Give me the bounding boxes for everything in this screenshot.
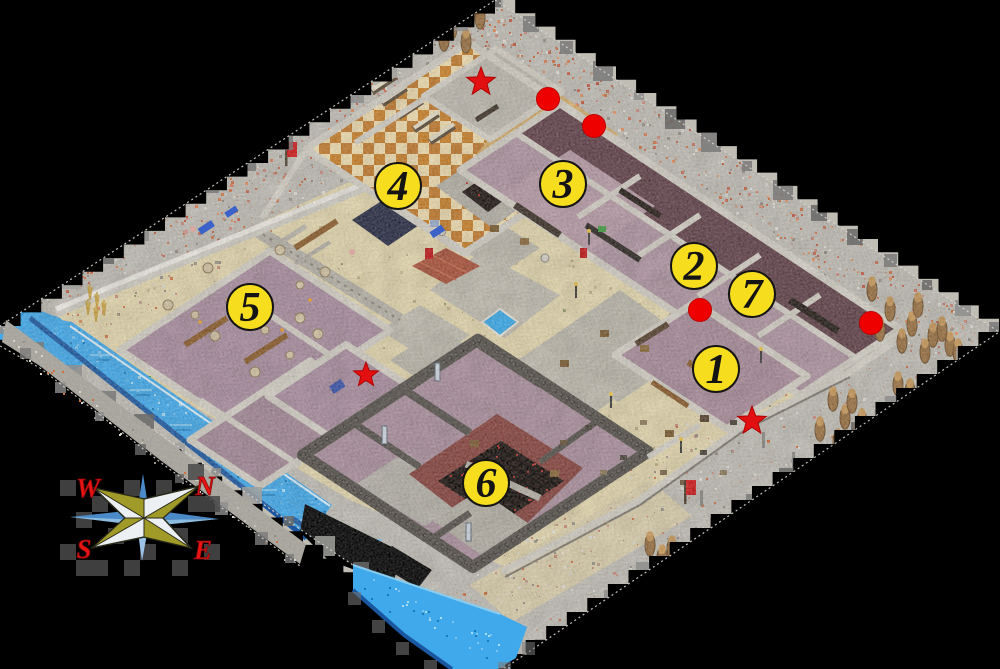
svg-text:N: N bbox=[194, 471, 216, 501]
svg-text:2: 2 bbox=[683, 244, 705, 290]
svg-text:6: 6 bbox=[476, 461, 497, 507]
svg-text:3: 3 bbox=[552, 162, 574, 208]
svg-text:7: 7 bbox=[742, 272, 765, 318]
svg-text:S: S bbox=[76, 534, 91, 564]
svg-text:1: 1 bbox=[706, 347, 727, 393]
svg-text:E: E bbox=[193, 535, 212, 565]
svg-text:5: 5 bbox=[240, 285, 261, 331]
svg-text:W: W bbox=[76, 473, 102, 503]
svg-text:4: 4 bbox=[387, 164, 409, 210]
